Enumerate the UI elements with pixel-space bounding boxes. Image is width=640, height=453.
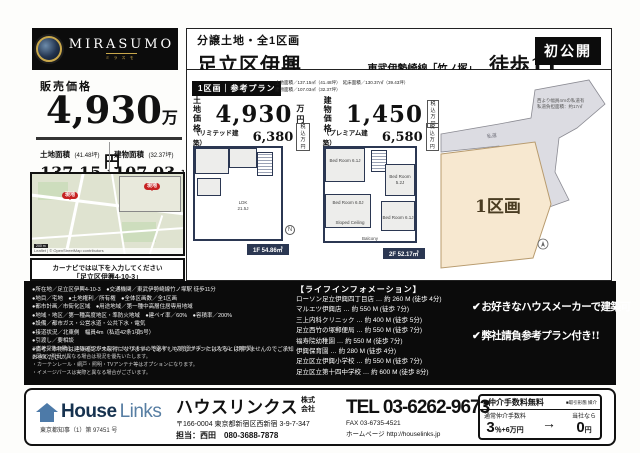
plan-area-line1: 土地面積／137.15㎡（41.48坪） 延床面積／130.37㎡（39.43坪…: [275, 80, 408, 87]
site-marker: 現地: [62, 192, 78, 199]
logo-name: MIRASUMO: [69, 37, 174, 52]
balcony-label: Balcony: [345, 236, 395, 242]
floor1-area-badge: 1F 54.86㎡: [247, 244, 289, 255]
plan-area-line2: 建物面積／107.03㎡（32.37坪）: [275, 87, 408, 94]
map-attribution: Leaflet | © OpenStreetMap contributors: [32, 248, 183, 254]
tax-included-label: 税込: [298, 124, 307, 137]
life-info-item: 伊興保育園 … 約 280 M (徒歩 4分): [296, 347, 486, 357]
tax-included-label: 税込: [429, 101, 437, 114]
life-info-item: 足立区立第十四中学校 … 約 600 M (徒歩 8分): [296, 368, 486, 378]
arrow-icon: →: [542, 415, 556, 431]
life-info-item: 福寿院幼稚園 … 約 550 M (徒歩 7分): [296, 337, 486, 347]
disclaimer-notes: ※当社提携の場合、ジャパンホームシールドまたは、地盤ネットの地盤サポートシステム…: [32, 345, 294, 377]
normal-fee: 通常仲介手数料 3％+6万円: [484, 411, 526, 435]
bedroom-1-label: Bed Room 6.1J: [327, 158, 363, 164]
fee-free-label: ■仲介手数料無料: [483, 397, 544, 408]
ldk-size: 21.5J: [221, 206, 265, 212]
car-navi-instruction: カーナビでは以下を入力してください: [32, 262, 183, 272]
man-yen-label: 万円: [298, 137, 307, 150]
limited-plan-price: 6,380: [253, 130, 294, 145]
note-line: ※図面と現況が異なる場合は現況を優先いたします。: [32, 353, 294, 361]
bathroom: [195, 148, 229, 174]
selling-point-2-text: 弊社請負参考プラン付き!!: [481, 330, 599, 342]
stairs: [257, 152, 273, 176]
life-info-item: ローソン足立伊興四丁目店 … 約 260 M (徒歩 4分): [296, 295, 486, 305]
building-area-label: 建物面積: [114, 150, 144, 159]
first-release-badge: 初公開: [535, 37, 601, 65]
divider: [36, 137, 182, 140]
floor2-area-badge: 2F 52.17㎡: [383, 248, 425, 259]
detail-line: ●地域・地区／第一種高度地区・準防火地域 ●建ペイ率／60% ●容積率／200%: [32, 312, 294, 321]
map-road: [30, 226, 185, 240]
our-fee: 当社なら 0円: [572, 411, 596, 435]
floorplan-2f: Bed Room 6.1J Bed Room 5.2J Bed Room 6.0…: [323, 146, 417, 243]
company-address: 〒166-0004 東京都新宿区西新宿 3-9-7-347: [176, 419, 346, 429]
road-note-2: 私道負担面積：約17㎡: [537, 103, 583, 110]
selling-point-1-text: お好きなハウスメーカーで建築可: [481, 301, 630, 313]
bedroom-1: [325, 148, 365, 182]
location-map: 現地 現地 200 m Leaflet | © OpenStreetMap co…: [30, 172, 185, 256]
note-line: ・カーテンレール・網戸・照明・TVアンテナ等はオプションになります。: [32, 361, 294, 369]
mirasumo-logo: MIRASUMO ミラスモ: [32, 28, 178, 70]
company-info-block: ハウスリンクス 株式 会社 〒166-0004 東京都新宿区西新宿 3-9-7-…: [176, 393, 346, 441]
life-info-item: 三上内科クリニック … 約 400 M (徒歩 5分): [296, 316, 486, 326]
plot-svg: 1区画 私道 西より幅員4ｍの私道有 私道負担面積：約17㎡: [439, 76, 609, 276]
detail-line: ●設備／都市ガス・公営水道・公共下水・電気: [32, 320, 294, 329]
ldk-label: LDK 21.5J: [221, 200, 265, 212]
detail-line: ●地目／宅地 ●土地権利／所有権 ●全体区画数／全1区画: [32, 295, 294, 304]
map-inset: 現地: [119, 176, 181, 212]
homepage-label: ホームページ: [346, 431, 385, 438]
mirasumo-emblem-icon: [36, 36, 62, 62]
floorplan-1f: LDK 21.5J N: [193, 146, 283, 241]
header-banner: 分譲土地・全1区画 足立区伊興410① 東武伊勢崎線「竹ノ塚」駅 徒歩11分!!…: [186, 28, 612, 70]
detail-line: ●都市計画／市街化区域 ●用途地域／第一種中高層住居専用地域: [32, 303, 294, 312]
detail-line: ●接道状況／北東側 幅員4m（私道42条1項5号）: [32, 329, 294, 338]
flyer-page: MIRASUMO ミラスモ 分譲土地・全1区画 足立区伊興410① 東武伊勢崎線…: [0, 0, 640, 453]
note-line: ※当社提携の場合、ジャパンホームシールドまたは、地盤ネットの地盤サポートシステム…: [32, 345, 294, 353]
logo-subtitle: ミラスモ: [106, 53, 138, 61]
sale-price-number: 4,930: [46, 88, 162, 132]
north-arrow-icon: N: [285, 225, 295, 235]
car-navi-note: カーナビでは以下を入力してください 「足立区伊興4-10-3」: [30, 258, 185, 281]
transaction-type-label: ■取引形態 媒介: [566, 400, 597, 406]
check-icon: ✔: [472, 330, 480, 342]
plan-section: 1区画｜参考プラン 土地面積／137.15㎡（41.48坪） 延床面積／130.…: [186, 70, 612, 281]
man-yen-label: 万円: [428, 137, 437, 150]
selling-point-1: ✔お好きなハウスメーカーで建築可: [472, 299, 614, 314]
map-scale: 200 m: [34, 244, 48, 248]
company-suffix: 株式 会社: [301, 397, 315, 413]
our-fee-value: 0: [576, 419, 584, 436]
site-marker: 現地: [144, 183, 160, 190]
company-footer: HouseLinks 東京都知事（1）第 97451 号 ハウスリンクス 株式 …: [24, 388, 616, 446]
fax-number: FAX 03-6735-4521: [346, 420, 474, 427]
premium-plan-unit: 税込 万円: [426, 123, 439, 151]
note-line: ・イメージパースは実際と異なる場合がございます。: [32, 369, 294, 377]
company-name: ハウスリンクス: [176, 393, 298, 418]
tel-number: TEL 03-6262-9673: [346, 397, 474, 419]
bedroom-3-label: Bed Room 6.0J: [329, 200, 367, 206]
plot-plan-tag: 1区画｜参考プラン: [192, 81, 281, 96]
life-info-item: 足立区立伊興小学校 … 約 550 M (徒歩 7分): [296, 357, 486, 367]
life-info-item: 足立西竹の塚郵便局 … 約 550 M (徒歩 7分): [296, 326, 486, 336]
life-information: 【ライフインフォメーション】 ローソン足立伊興四丁目店 … 約 260 M (徒…: [296, 284, 486, 378]
normal-fee-extra: ％+6万円: [495, 427, 524, 434]
license-number: 東京都知事（1）第 97451 号: [36, 425, 176, 434]
road-note-1: 西より幅員4ｍの私道有: [537, 97, 585, 104]
kitchen: [197, 178, 221, 196]
house-icon: [36, 403, 58, 423]
our-fee-unit: 円: [585, 427, 592, 434]
homepage-url[interactable]: http://houselinks.jp: [387, 431, 441, 438]
life-info-title: 【ライフインフォメーション】: [296, 284, 486, 295]
check-icon: ✔: [472, 301, 480, 313]
washroom: [229, 148, 257, 168]
bedroom-2-label: Bed Room 5.2J: [385, 174, 415, 186]
detail-line: ●所在地／足立区伊興4-10-3 ●交通機関／東武伊勢崎線竹ノ塚駅 徒歩11分: [32, 286, 294, 295]
limited-plan-unit: 税込 万円: [296, 123, 309, 151]
company-suffix-2: 会社: [301, 406, 315, 414]
brokerage-fee-box: ■仲介手数料無料 ■取引形態 媒介 通常仲介手数料 3％+6万円 → 当社なら …: [478, 394, 602, 440]
contact-person: 担当：西田 080-3688-7878: [176, 430, 346, 441]
phone-block: TEL 03-6262-9673 FAX 03-6735-4521 ホームページ…: [346, 397, 474, 438]
premium-plan-label: （プレミアム建築）: [323, 127, 377, 147]
houselinks-logo-block: HouseLinks 東京都知事（1）第 97451 号: [26, 401, 176, 434]
parcel-label: 1区画: [475, 197, 521, 217]
private-road-label: 私道: [486, 132, 497, 140]
sloped-ceiling-label: Sloped Ceiling: [329, 220, 371, 226]
plot-diagram: 1区画 私道 西より幅員4ｍの私道有 私道負担面積：約17㎡: [439, 76, 609, 276]
company-suffix-1: 株式: [301, 397, 315, 405]
normal-fee-rate: 3: [486, 419, 494, 436]
details-strip: ●所在地／足立区伊興4-10-3 ●交通機関／東武伊勢崎線竹ノ塚駅 徒歩11分 …: [24, 281, 616, 385]
selling-points: ✔お好きなハウスメーカーで建築可 ✔弊社請負参考プラン付き!!: [472, 299, 614, 357]
building-area-tsubo: (32.37坪): [148, 153, 173, 159]
selling-point-2: ✔弊社請負参考プラン付き!!: [472, 328, 614, 343]
land-area-label: 土地面積: [40, 150, 70, 159]
plan-area-figures: 土地面積／137.15㎡（41.48坪） 延床面積／130.37㎡（39.43坪…: [275, 80, 408, 94]
land-area-tsubo: (41.48坪): [74, 153, 99, 159]
tax-included-label: 税込: [428, 124, 437, 137]
logo-links-text: Links: [120, 401, 162, 423]
logo-house-text: House: [61, 401, 117, 423]
premium-plan-price: 6,580: [382, 130, 423, 145]
life-info-item: マルエツ伊興店 … 約 550 M (徒歩 7分): [296, 305, 486, 315]
limited-plan-label: （リミテッド建築）: [193, 127, 248, 147]
bedroom-4-label: Bed Room 6.1J: [381, 215, 415, 221]
